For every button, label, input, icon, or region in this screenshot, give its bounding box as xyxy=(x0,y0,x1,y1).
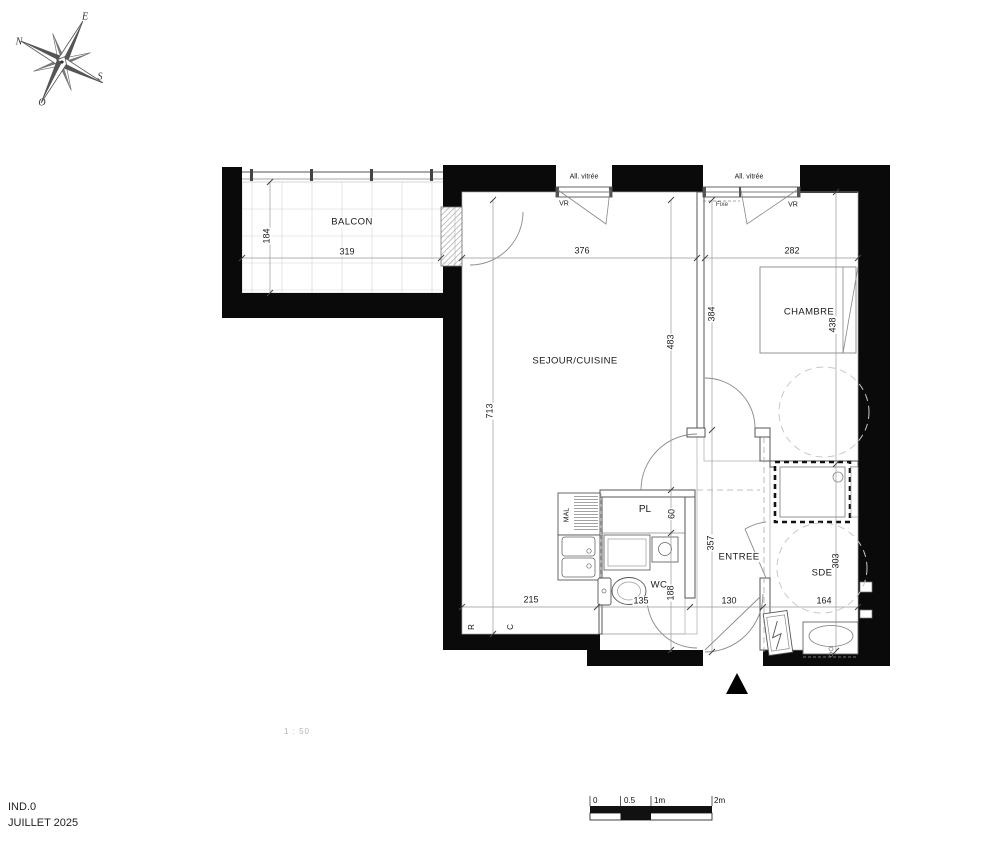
dim-sde-height: 303 xyxy=(832,552,841,569)
turning-circle xyxy=(779,367,869,457)
room-label-entree: ENTREE xyxy=(718,552,761,562)
room-label-chambre: CHAMBRE xyxy=(783,307,835,317)
sde-fixtures xyxy=(763,462,867,657)
scale-tick-2m: 2m xyxy=(714,796,725,805)
shower xyxy=(775,462,850,522)
compass-north-label: N xyxy=(16,37,23,48)
dim-sejour-east-height: 483 xyxy=(667,333,676,350)
window2-fixed-label: Fixe xyxy=(715,202,729,209)
compass-east-label: E xyxy=(82,12,88,23)
room-label-sde: SDE xyxy=(811,568,834,578)
compass-rose xyxy=(0,0,124,124)
door-swing-arc xyxy=(470,212,523,265)
dim-chambre-west-height: 384 xyxy=(708,305,717,322)
sde-door-arc xyxy=(745,522,766,529)
dim-balcon-width: 319 xyxy=(338,248,355,257)
scale-tick-0: 0 xyxy=(593,796,597,805)
radiator-label: R xyxy=(468,623,476,631)
scale-bar-graphic xyxy=(590,796,712,820)
window2-glazing-label: All. vitrée xyxy=(734,174,765,181)
dim-sejour-width: 376 xyxy=(573,247,590,256)
dim-balcon-depth: 184 xyxy=(263,227,272,244)
plan-linework xyxy=(0,0,1000,857)
wc-door-arc xyxy=(647,598,697,648)
room-label-pl: PL xyxy=(638,505,652,515)
scale-tick-1m: 1m xyxy=(654,796,665,805)
room-label-balcon: BALCON xyxy=(330,217,373,227)
window1-shutter-label: VR xyxy=(558,201,570,208)
convector-label: C xyxy=(507,623,515,631)
dim-entree-door-width: 130 xyxy=(720,597,737,606)
dim-wc-width: 135 xyxy=(632,597,649,606)
balcony-door xyxy=(441,207,523,266)
dim-chambre-east-height: 438 xyxy=(829,316,838,333)
chambre-door-arc xyxy=(705,378,755,428)
sejour-door-arc xyxy=(641,434,697,490)
compass-west-label: O xyxy=(38,98,45,109)
revision-index: IND.0 xyxy=(8,801,36,813)
dim-chambre-width: 282 xyxy=(783,247,800,256)
dim-entree-height: 357 xyxy=(707,534,716,551)
room-label-sejour: SEJOUR/CUISINE xyxy=(531,356,618,366)
hand-basin xyxy=(652,537,678,562)
balcony-floor-grid xyxy=(242,182,455,293)
window1-glazing-label: All. vitrée xyxy=(569,174,600,181)
dim-pl-depth: 60 xyxy=(668,508,677,520)
entrance-arrow xyxy=(726,673,748,694)
exterior-walls xyxy=(222,165,890,666)
scale-tick-05: 0.5 xyxy=(624,796,635,805)
sink-bowl xyxy=(562,558,595,577)
compass-south-label: S xyxy=(98,72,103,83)
dim-sde-width: 164 xyxy=(815,597,832,606)
toilet-cistern xyxy=(598,578,611,605)
cabinet xyxy=(604,535,650,570)
washer-label: MAL xyxy=(564,507,571,523)
dim-sejour-height: 713 xyxy=(486,402,495,419)
plan-date: JUILLET 2025 xyxy=(8,817,78,829)
washer-hatch xyxy=(574,496,598,532)
window2-shutter-label: VR xyxy=(787,202,799,209)
chambre-furniture xyxy=(760,267,869,457)
vanity xyxy=(803,622,858,654)
floor-plan-sheet: N E S O BALCON 319 184 All. vitrée VR Al… xyxy=(0,0,1000,857)
scale-note: 1 : 50 xyxy=(283,728,311,736)
dim-wc-depth: 188 xyxy=(667,584,676,601)
dim-kitchen-width: 215 xyxy=(522,596,539,605)
